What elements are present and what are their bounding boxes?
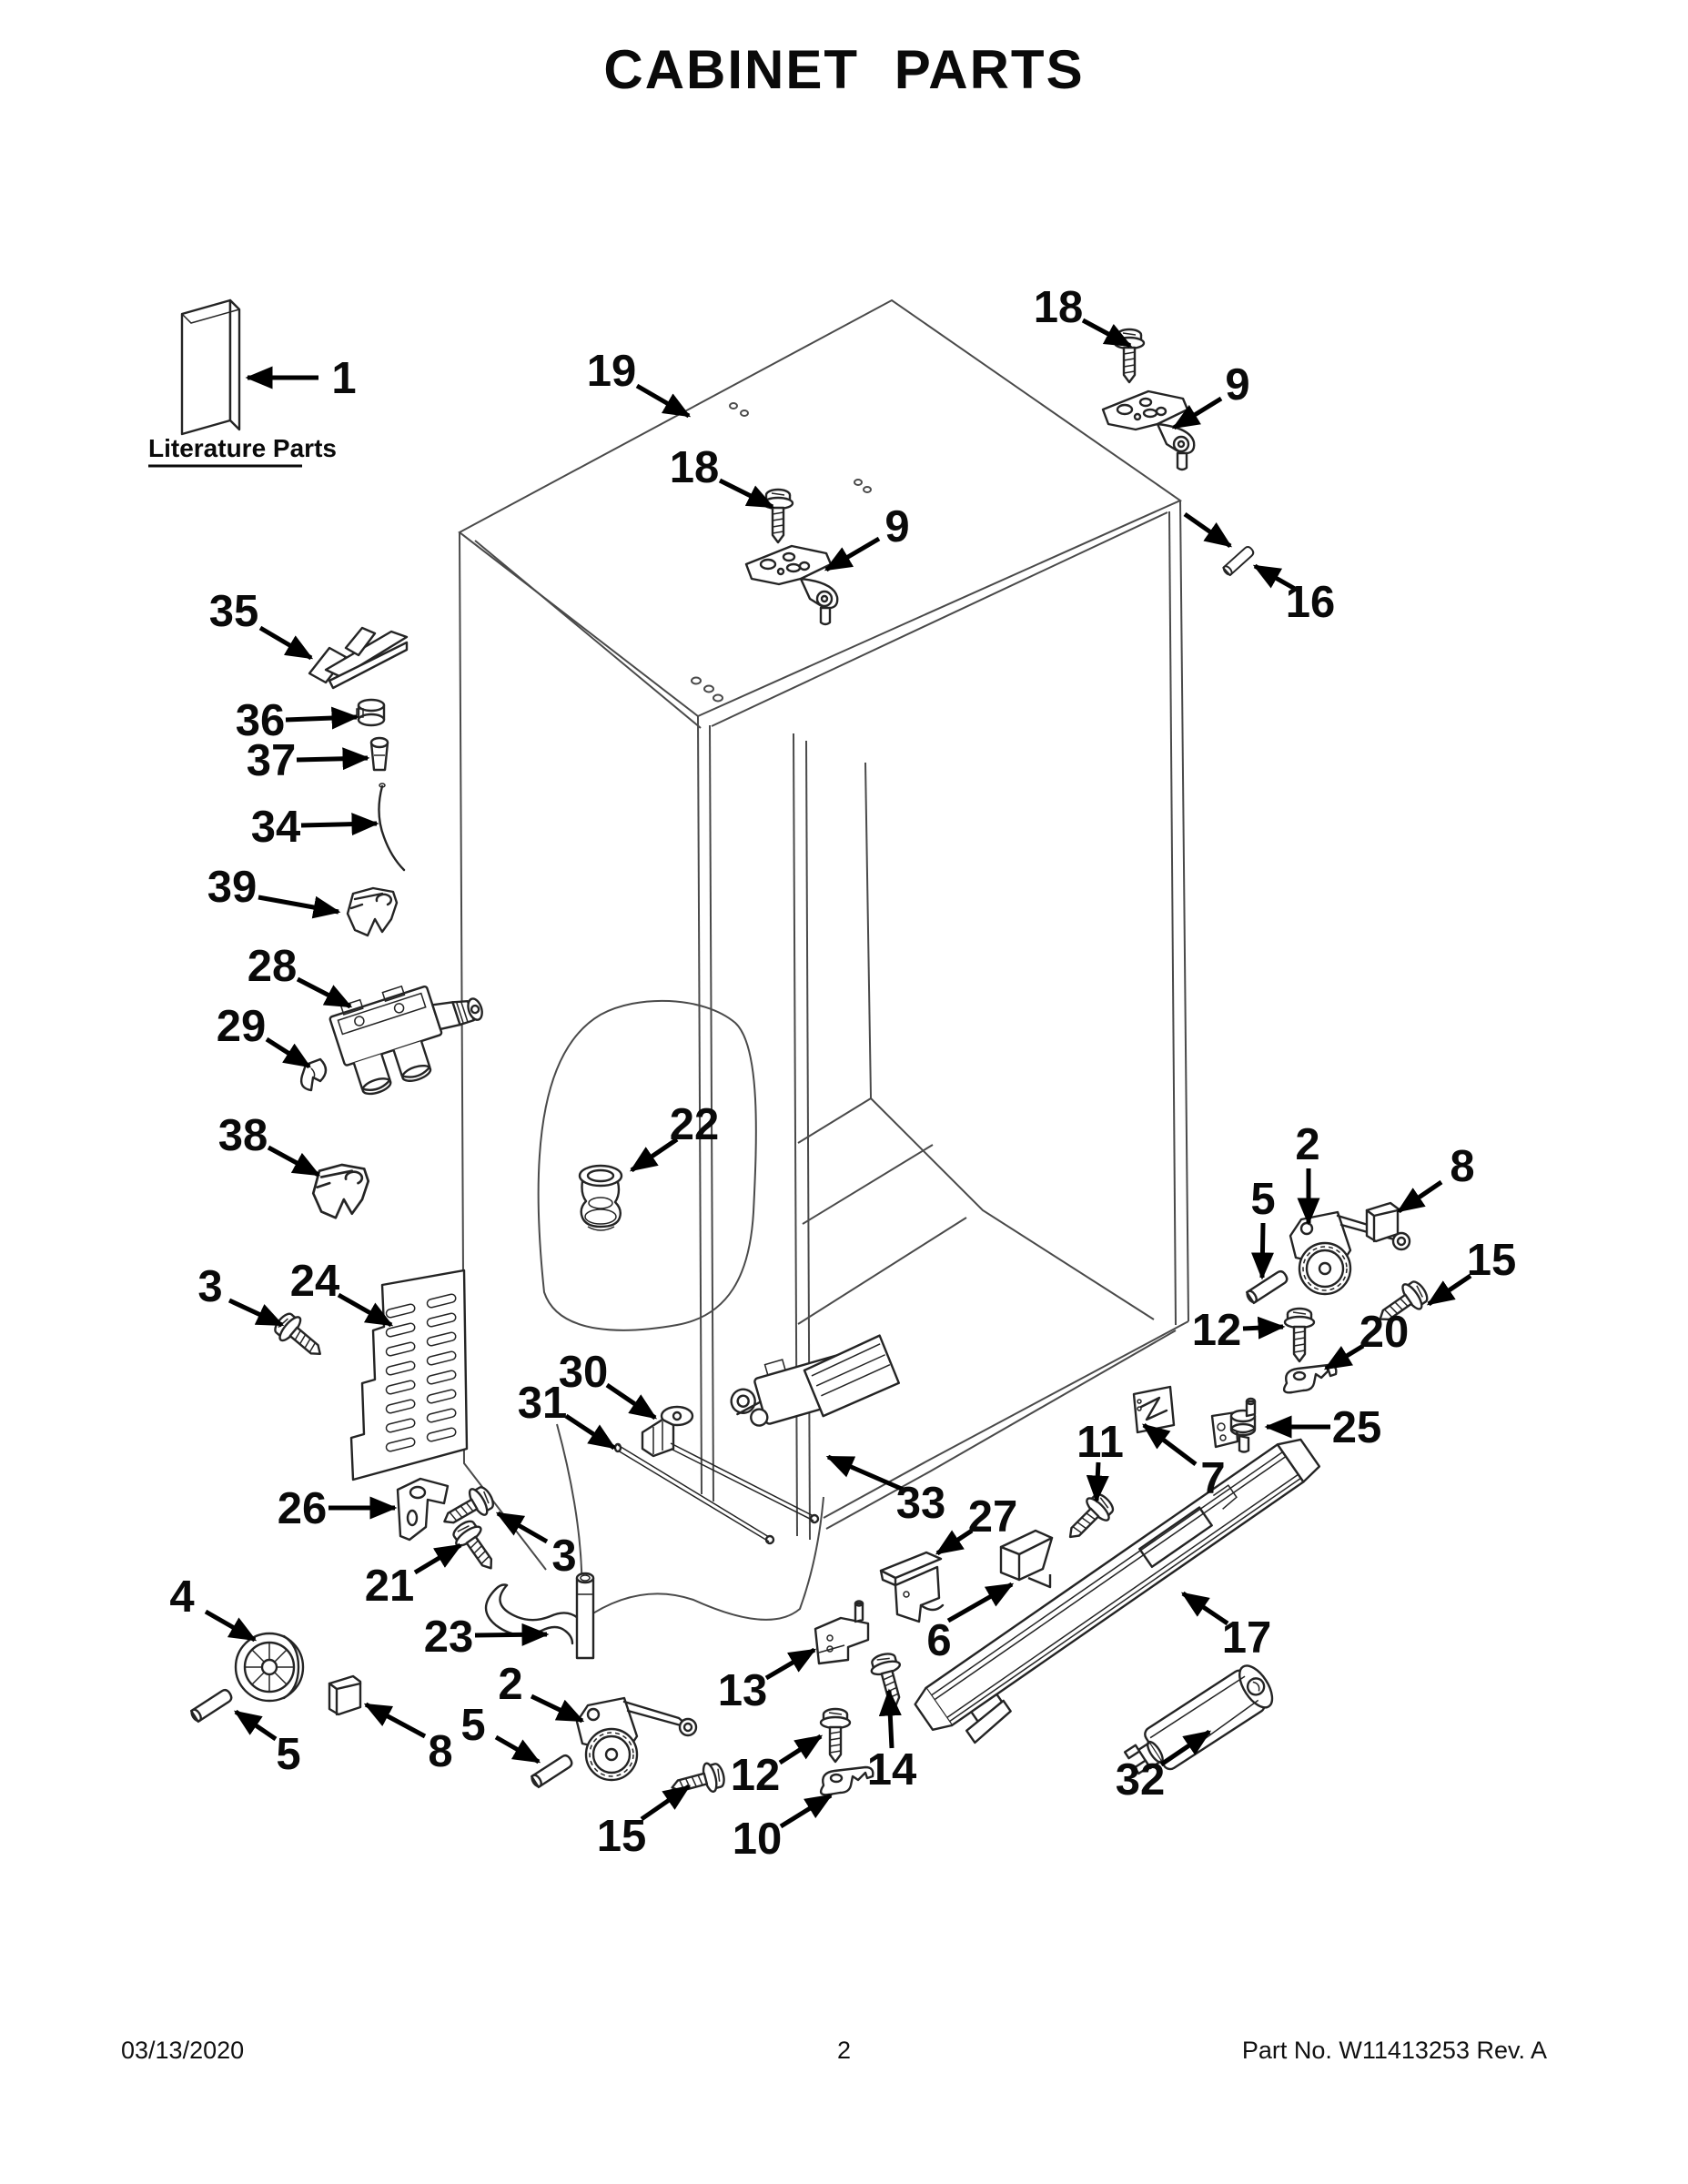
callout-label-33-36: 33: [896, 1479, 946, 1528]
part-drain-grommet-22: [580, 1166, 622, 1230]
callout-arrow-33: [828, 1457, 904, 1490]
callout-arrow-3: [498, 1513, 547, 1542]
part-clamp-36: [357, 700, 384, 725]
callout-arrow-2: [531, 1696, 582, 1721]
callout-arrow-15: [1429, 1276, 1471, 1304]
callout-arrow-10: [781, 1795, 831, 1826]
part-z-bracket-7: [1134, 1387, 1174, 1432]
part-water-valve-28: [328, 965, 497, 1099]
callout-label-27-33: 27: [968, 1492, 1018, 1542]
callout-arrow-29: [267, 1039, 309, 1067]
part-cap-8-right: [1367, 1203, 1398, 1241]
callout-arrow-38: [268, 1148, 318, 1175]
part-cap-8-left: [329, 1676, 360, 1714]
part-screw-12-bottom: [821, 1709, 850, 1762]
part-bracket-26: [398, 1479, 448, 1540]
callout-label-9-3: 9: [884, 502, 909, 551]
callout-label-24-17: 24: [290, 1257, 340, 1306]
callout-arrow-4: [206, 1612, 255, 1640]
part-support-bracket-27: [881, 1552, 943, 1622]
part-water-tube-31: [615, 1443, 818, 1543]
part-bottom-grille-rail-17: [911, 1432, 1337, 1758]
part-roller-assembly-2-left: [577, 1698, 696, 1780]
part-screw-12-right: [1285, 1309, 1314, 1361]
callout-arrow-5: [1262, 1223, 1263, 1278]
callout-label-2-25: 2: [498, 1660, 522, 1709]
callout-arrow-14: [889, 1691, 892, 1748]
part-top-hinge-right: [1103, 391, 1194, 470]
callout-arrow-34: [301, 824, 377, 825]
callout-arrow-27: [937, 1531, 972, 1553]
callout-label-25-46: 25: [1332, 1403, 1382, 1452]
part-clamp-plate-10: [821, 1767, 873, 1795]
callout-label-9-5: 9: [1225, 360, 1249, 409]
part-bottom-hinge-25: [1212, 1399, 1255, 1452]
callout-arrow-18: [720, 480, 773, 507]
part-drain-hose-23: [486, 1573, 593, 1658]
literature-book: [182, 300, 239, 434]
callout-label-17-47: 17: [1222, 1613, 1272, 1663]
document-page: CABINET PARTS: [0, 0, 1688, 2184]
callout-label-28-13: 28: [248, 942, 298, 991]
part-shield-bracket-35: [309, 628, 407, 688]
callout-arrow-17: [1183, 1593, 1228, 1623]
callout-arrow-6: [948, 1584, 1012, 1621]
callout-label-5-41: 5: [1250, 1175, 1275, 1224]
callout-arrow-21: [415, 1545, 460, 1572]
callout-label-13-28: 13: [718, 1666, 768, 1715]
callout-label-5-22: 5: [276, 1730, 300, 1779]
callout-label-29-14: 29: [217, 1002, 267, 1051]
callout-arrow-20: [1326, 1346, 1363, 1369]
callout-arrow-9: [826, 539, 879, 570]
callout-arrow-3: [229, 1300, 282, 1325]
callout-arrow-12: [780, 1736, 821, 1763]
callout-arrow-37: [297, 758, 368, 760]
part-pin-16: [1222, 545, 1255, 576]
callout-label-16-6: 16: [1286, 578, 1336, 627]
callout-label-34-11: 34: [251, 803, 301, 852]
part-clip-39: [348, 888, 397, 935]
part-screw-3-left: [270, 1309, 329, 1365]
callout-label-8-23: 8: [428, 1727, 452, 1776]
part-screw-11: [1060, 1490, 1118, 1548]
callout-arrow-31: [566, 1416, 614, 1448]
callout-label-31-38: 31: [518, 1379, 568, 1428]
part-front-bracket-13: [815, 1602, 868, 1664]
callout-arrow-19: [637, 386, 689, 416]
callout-arrow-11: [1097, 1462, 1098, 1501]
callout-arrow-30: [607, 1385, 655, 1418]
part-pin-5-right: [1246, 1269, 1289, 1304]
callout-arrow-8: [366, 1704, 425, 1736]
callout-label-38-15: 38: [218, 1111, 268, 1160]
callout-arrow-39: [258, 897, 339, 912]
part-water-tank-assembly-33: [723, 1330, 902, 1440]
callout-label-15-27: 15: [597, 1812, 647, 1861]
callout-label-2-40: 2: [1295, 1120, 1319, 1169]
callout-label-15-43: 15: [1467, 1236, 1517, 1285]
footer-part-number: Part No. W11413253 Rev. A: [1242, 2037, 1547, 2065]
callout-arrow-8: [1399, 1182, 1441, 1211]
part-screw-18-left: [763, 490, 793, 542]
callout-label-1-0: 1: [331, 354, 356, 403]
part-plug-37: [371, 738, 388, 770]
literature-label: Literature Parts: [148, 434, 337, 462]
insulation-blob-outline: [539, 1001, 756, 1330]
callout-label-3-19: 3: [551, 1532, 576, 1581]
callout-arrow-13: [766, 1650, 814, 1678]
callout-label-18-2: 18: [670, 443, 720, 492]
callout-label-39-12: 39: [207, 863, 258, 912]
callout-label-19-1: 19: [587, 347, 637, 396]
part-tube-34: [379, 784, 404, 870]
part-axle-pin-5-left: [190, 1688, 234, 1723]
callout-arrow-7: [1144, 1425, 1196, 1464]
callout-label-11-34: 11: [1076, 1418, 1124, 1467]
part-clip-38: [313, 1165, 368, 1218]
callout-label-4-21: 4: [169, 1572, 194, 1622]
callout-label-7-35: 7: [1200, 1454, 1225, 1503]
part-cabinet-roller-4: [236, 1633, 303, 1701]
callout-arrow-36: [286, 717, 357, 720]
callout-label-6-32: 6: [926, 1616, 951, 1665]
callout-label-35-8: 35: [209, 587, 259, 636]
callout-label-22-39: 22: [670, 1100, 720, 1149]
callout-label-32-48: 32: [1116, 1755, 1166, 1805]
callout-label-37-10: 37: [247, 736, 297, 785]
callout-label-21-20: 21: [365, 1562, 415, 1611]
part-louver-panel-24: [351, 1270, 467, 1480]
callout-label-12-44: 12: [1192, 1306, 1242, 1355]
callout-arrow-5: [496, 1737, 539, 1762]
part-top-hinge-left: [746, 546, 837, 624]
callout-label-26-18: 26: [278, 1484, 328, 1533]
callout-arrow-15: [642, 1786, 689, 1819]
callout-label-3-16: 3: [197, 1262, 222, 1311]
callout-arrow-7: [1185, 514, 1230, 546]
callout-label-10-31: 10: [733, 1815, 783, 1864]
callout-label-5-26: 5: [460, 1701, 485, 1750]
parts-diagram-svg: Literature Parts: [0, 0, 1688, 2184]
callout-label-12-29: 12: [731, 1751, 781, 1800]
callout-arrow-28: [298, 979, 350, 1006]
callout-label-18-4: 18: [1034, 283, 1084, 332]
callout-label-14-30: 14: [867, 1745, 917, 1795]
callout-arrow-5: [236, 1712, 276, 1739]
callout-label-8-42: 8: [1450, 1142, 1474, 1191]
callout-arrow-12: [1243, 1327, 1283, 1329]
callout-label-20-45: 20: [1359, 1308, 1410, 1357]
callout-arrow-23: [475, 1634, 547, 1635]
callout-label-23-24: 23: [424, 1613, 474, 1662]
callout-arrow-35: [260, 628, 311, 658]
